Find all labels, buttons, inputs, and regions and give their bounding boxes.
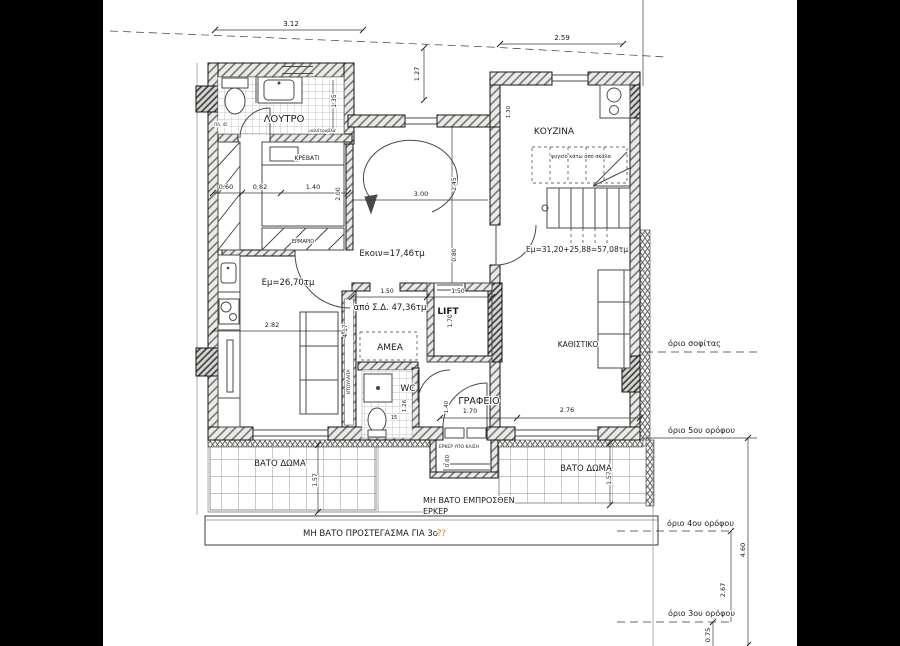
dim-2-82: 2.82 xyxy=(265,321,279,329)
dim-0-60-b: 0.60 xyxy=(445,454,451,467)
note-fridge-under-stair: ψυγείο κάτω από σκάλα xyxy=(551,153,612,160)
room-loutro: ΛΟΥΤΡΟ xyxy=(264,114,305,125)
dim-1-57-a: 1.57 xyxy=(312,473,319,487)
dim-1-35: 1.35 xyxy=(331,94,338,108)
dim-0-82: 0.82 xyxy=(253,183,267,191)
toilet-icon xyxy=(225,88,245,114)
dim-2-76: 2.76 xyxy=(560,406,574,414)
room-kouzina: ΚΟΥΖΙΝΑ xyxy=(534,127,575,137)
room-amea: ΑΜΕΑ xyxy=(377,343,404,353)
area-apo-sd: από Σ.Δ. 47,36τμ xyxy=(354,302,427,313)
bathroom-fixtures xyxy=(218,77,344,134)
parapet-band-right xyxy=(497,440,643,447)
note-ntoulapa: ΝΤΟΥΛΑΠΑ xyxy=(346,369,352,395)
dim-0-75: 0.75 xyxy=(704,628,712,642)
dim-4-60: 4.60 xyxy=(739,543,747,557)
tiled-terrace-left xyxy=(210,446,376,510)
area-em-left: Εμ=26,70τμ xyxy=(262,278,315,288)
toilet-icon xyxy=(368,408,386,432)
dim-2-59: 2.59 xyxy=(554,34,570,42)
dim-3-00: 3.00 xyxy=(414,190,428,198)
terrace-vato-doma-right: ΒΑΤΟ ΔΩΜΑ xyxy=(560,464,612,474)
dim-2-45: 2.45 xyxy=(451,177,458,191)
limit-sofitas: όριο σοφίτας xyxy=(668,338,721,348)
room-kathistiko: ΚΑΘΙΣΤΙΚΟ xyxy=(558,340,599,349)
room-wc: WC xyxy=(400,384,415,394)
note-yalotouvla: υαλότουβλα xyxy=(308,127,336,134)
dim-15: 15 xyxy=(391,415,397,421)
sink-icon xyxy=(258,77,302,103)
dim-1-50-b: 1.50 xyxy=(451,288,465,295)
note-mi-vato-line1: ΜΗ ΒΑΤΟ ΕΜΠΡΟΣΘΕΝ xyxy=(423,496,515,505)
kitchenette xyxy=(218,255,240,427)
dim-3-12: 3.12 xyxy=(283,20,299,28)
note-prostegasma: ΜΗ ΒΑΤΟ ΠΡΟΣΤΕΓΑΣΜΑ ΓΙΑ 3ο xyxy=(303,529,438,539)
floor-plan-viewer: 3.122.591.271.351.300.600.821.402.003.00… xyxy=(0,0,900,646)
dim-1-27: 1.27 xyxy=(413,67,421,81)
dim-1-50-a: 1.50 xyxy=(380,288,394,295)
dim-1-70-b: 1.70 xyxy=(463,407,477,415)
note-ermario: ΕΡΜΑΡΙΟ xyxy=(292,239,314,245)
note-mi-vato-line2: ΕΡΚΕΡ xyxy=(423,507,448,516)
bedroom-furniture xyxy=(218,142,344,250)
dim-1-30: 1.30 xyxy=(506,105,512,118)
dim-2-00: 2.00 xyxy=(335,187,342,201)
wardrobe-icon xyxy=(218,142,240,250)
sofa-icon xyxy=(598,270,630,368)
dim-1-40-a: 1.40 xyxy=(306,183,320,191)
column xyxy=(196,86,218,112)
terrace-vato-doma-left: ΒΑΤΟ ΔΩΜΑ xyxy=(254,459,306,469)
note-erker-ypo-klisi: ΕΡΚΕΡ ΥΠΟ ΚΛΙΣΗ xyxy=(439,444,479,450)
dim-2-67: 2.67 xyxy=(719,583,727,597)
dim-0-60-a: 0.60 xyxy=(219,183,233,191)
limit-3rd-floor: όριο 3ου ορόφου xyxy=(668,608,735,618)
dim-1-26: 1.26 xyxy=(402,399,408,412)
room-krevati: ΚΡΕΒΑΤΙ xyxy=(295,155,320,162)
ntoulapa-closet xyxy=(345,299,354,425)
area-em-right: Εμ=31,20+25,88=57,08τμ xyxy=(526,245,628,254)
limit-5th-floor: όριο 5ου ορόφου xyxy=(668,425,735,435)
limit-4th-floor: όριο 4ου ορόφου xyxy=(667,518,734,528)
dim-1-40-b: 1.40 xyxy=(444,400,450,413)
room-grafeio: ΓΡΑΦΕΙΟ xyxy=(458,396,499,407)
tiled-terrace-right xyxy=(499,446,651,503)
note-prostegasma-unknown: ?? xyxy=(437,529,446,539)
area-ekoin: Εκοιν=17,46τμ xyxy=(359,249,425,259)
dim-0-80: 0.80 xyxy=(451,248,458,262)
note-plate-45: ΠΛ. 45 xyxy=(214,122,228,127)
room-lift: LIFT xyxy=(437,307,459,317)
floor-plan-drawing: 3.122.591.271.351.300.600.821.402.003.00… xyxy=(0,0,900,646)
right-parapet-hatch xyxy=(640,230,650,440)
dim-4-17: 4.17 xyxy=(342,324,349,338)
toilet-tank-icon xyxy=(222,78,248,88)
